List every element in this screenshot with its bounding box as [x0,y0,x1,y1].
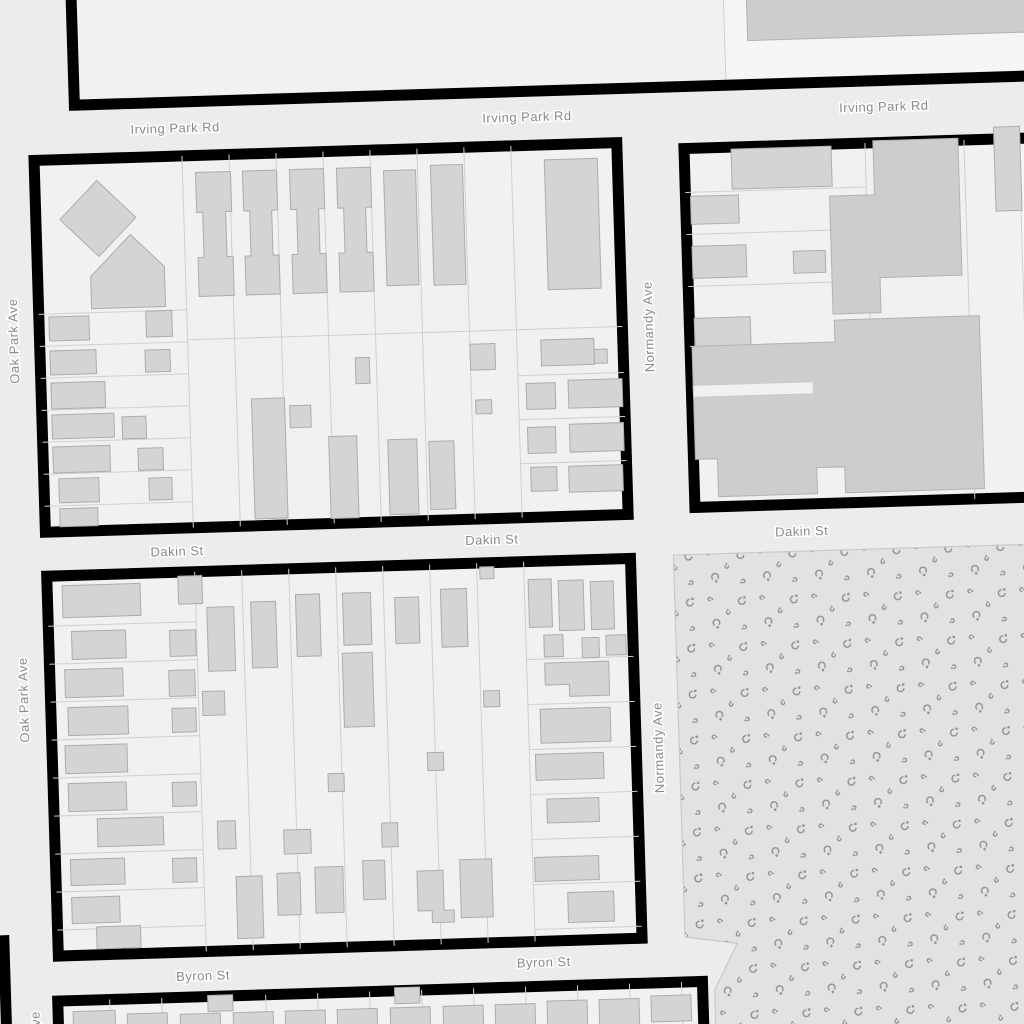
street-label-irving-park-rd-3: Irving Park Rd [839,98,929,116]
city-block-west-of-oakpark [0,941,10,1024]
city-block-oakpark-irving-dakin [34,143,628,533]
street-label-oak-park-ave-3: Oak Park Ave [28,1011,46,1024]
street-label-byron-st-2: Byron St [517,954,571,971]
street-label-dakin-st-3: Dakin St [775,523,829,540]
street-label-normandy-ave-2: Normandy Ave [649,702,667,793]
city-block-normandy-irving-dakin [684,124,1024,508]
street-label-dakin-st-1: Dakin St [150,543,204,560]
street-label-irving-park-rd-2: Irving Park Rd [482,108,572,126]
street-label-normandy-ave-1: Normandy Ave [640,281,658,372]
street-label-byron-st-1: Byron St [176,967,230,984]
street-label-oak-park-ave-1: Oak Park Ave [5,298,23,384]
map-viewport[interactable]: Irving Park Rd Irving Park Rd Irving Par… [0,0,1024,1024]
street-label-dakin-st-2: Dakin St [465,531,519,548]
street-label-irving-park-rd-1: Irving Park Rd [130,119,220,137]
city-block-oakpark-dakin-byron [47,558,642,956]
map-canvas[interactable]: Irving Park Rd Irving Park Rd Irving Par… [0,0,1024,1024]
street-label-oak-park-ave-2: Oak Park Ave [15,657,33,743]
